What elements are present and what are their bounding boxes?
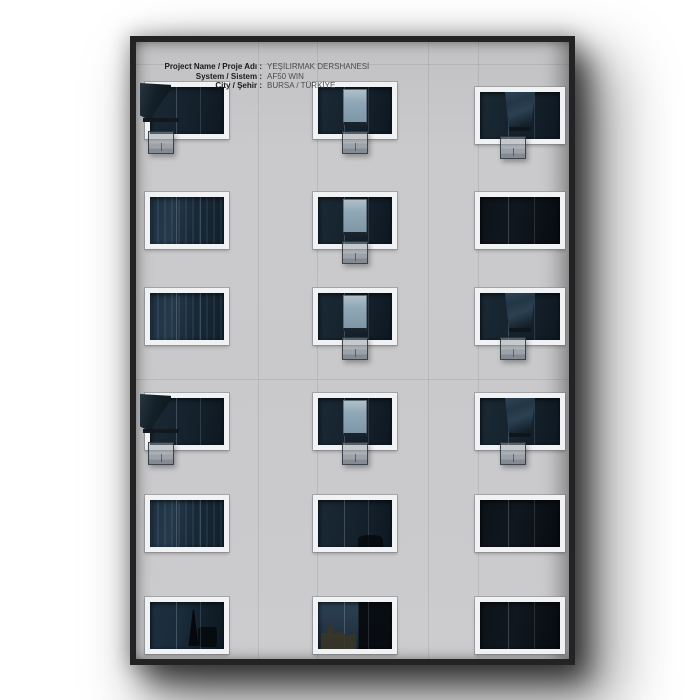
window-glass bbox=[318, 500, 392, 547]
panel-seam bbox=[136, 379, 569, 380]
caption-label-system: System / Sistem : bbox=[146, 72, 262, 82]
open-sash-rail bbox=[143, 118, 179, 122]
glass-mullions bbox=[318, 500, 392, 547]
window-r6-c2 bbox=[313, 597, 397, 654]
vent-flap bbox=[500, 337, 526, 360]
open-tilted-pane bbox=[505, 293, 535, 332]
caption-value-system: AF50 WIN bbox=[267, 72, 369, 82]
caption-label-project-name: Project Name / Proje Adı : bbox=[146, 62, 262, 72]
open-tilted-pane bbox=[343, 89, 367, 125]
glass-mullions bbox=[480, 500, 560, 547]
vent-flap bbox=[342, 241, 368, 264]
glass-mullions bbox=[150, 197, 224, 244]
window-glass bbox=[150, 602, 224, 649]
window-r2-c3 bbox=[475, 192, 565, 249]
vent-flap bbox=[500, 136, 526, 159]
project-caption: Project Name / Proje Adı : YEŞİLIRMAK DE… bbox=[146, 62, 369, 91]
window-r5-c3 bbox=[475, 495, 565, 552]
window-glass bbox=[150, 197, 224, 244]
window-glass bbox=[480, 197, 560, 244]
glass-mullions bbox=[150, 602, 224, 649]
page-background: Project Name / Proje Adı : YEŞİLIRMAK DE… bbox=[0, 0, 700, 700]
window-r6-c3 bbox=[475, 597, 565, 654]
window-r4-c1 bbox=[145, 393, 229, 450]
open-tilted-pane bbox=[343, 199, 367, 235]
vent-flap bbox=[148, 131, 174, 154]
open-tilted-pane bbox=[505, 398, 535, 437]
window-r3-c1 bbox=[145, 288, 229, 345]
window-r6-c1 bbox=[145, 597, 229, 654]
vent-flap bbox=[342, 131, 368, 154]
window-r3-c2 bbox=[313, 288, 397, 345]
vent-flap bbox=[342, 337, 368, 360]
window-glass bbox=[150, 500, 224, 547]
vent-flap bbox=[342, 442, 368, 465]
panel-seam bbox=[428, 42, 429, 659]
building-facade-photo: Project Name / Proje Adı : YEŞİLIRMAK DE… bbox=[136, 42, 569, 659]
open-tilted-pane bbox=[505, 92, 535, 131]
window-r5-c1 bbox=[145, 495, 229, 552]
window-r5-c2 bbox=[313, 495, 397, 552]
vent-flap bbox=[148, 442, 174, 465]
open-tilted-pane bbox=[343, 295, 367, 331]
glass-mullions bbox=[318, 602, 392, 649]
window-r4-c2 bbox=[313, 393, 397, 450]
glass-mullions bbox=[150, 293, 224, 340]
glass-mullions bbox=[150, 500, 224, 547]
open-sash-rail bbox=[143, 429, 179, 433]
window-glass bbox=[480, 602, 560, 649]
window-r3-c3 bbox=[475, 288, 565, 345]
window-r1-c3 bbox=[475, 87, 565, 144]
window-glass bbox=[480, 500, 560, 547]
glass-mullions bbox=[480, 197, 560, 244]
window-r4-c3 bbox=[475, 393, 565, 450]
caption-value-project-name: YEŞİLIRMAK DERSHANESİ bbox=[267, 62, 369, 72]
caption-value-city: BURSA / TÜRKİYE bbox=[267, 81, 369, 91]
photo-frame: Project Name / Proje Adı : YEŞİLIRMAK DE… bbox=[130, 36, 575, 665]
open-tilted-pane bbox=[343, 400, 367, 436]
window-glass bbox=[150, 293, 224, 340]
panel-seam bbox=[258, 42, 259, 659]
window-glass bbox=[318, 602, 392, 649]
caption-label-city: City / Şehir : bbox=[146, 81, 262, 91]
vent-flap bbox=[500, 442, 526, 465]
glass-mullions bbox=[480, 602, 560, 649]
window-r2-c1 bbox=[145, 192, 229, 249]
window-r2-c2 bbox=[313, 192, 397, 249]
